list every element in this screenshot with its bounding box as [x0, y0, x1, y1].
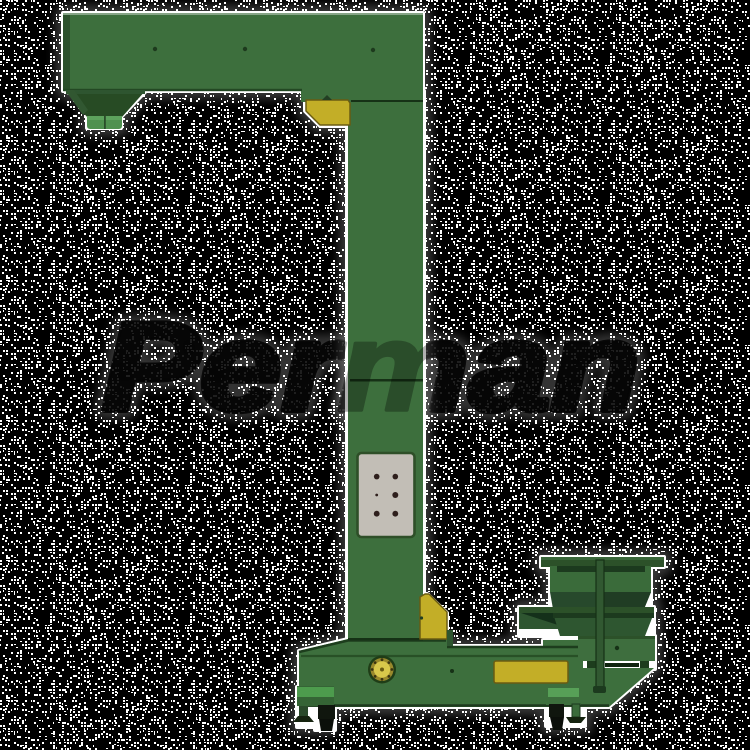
svg-text:Perman: Perman	[102, 296, 640, 437]
